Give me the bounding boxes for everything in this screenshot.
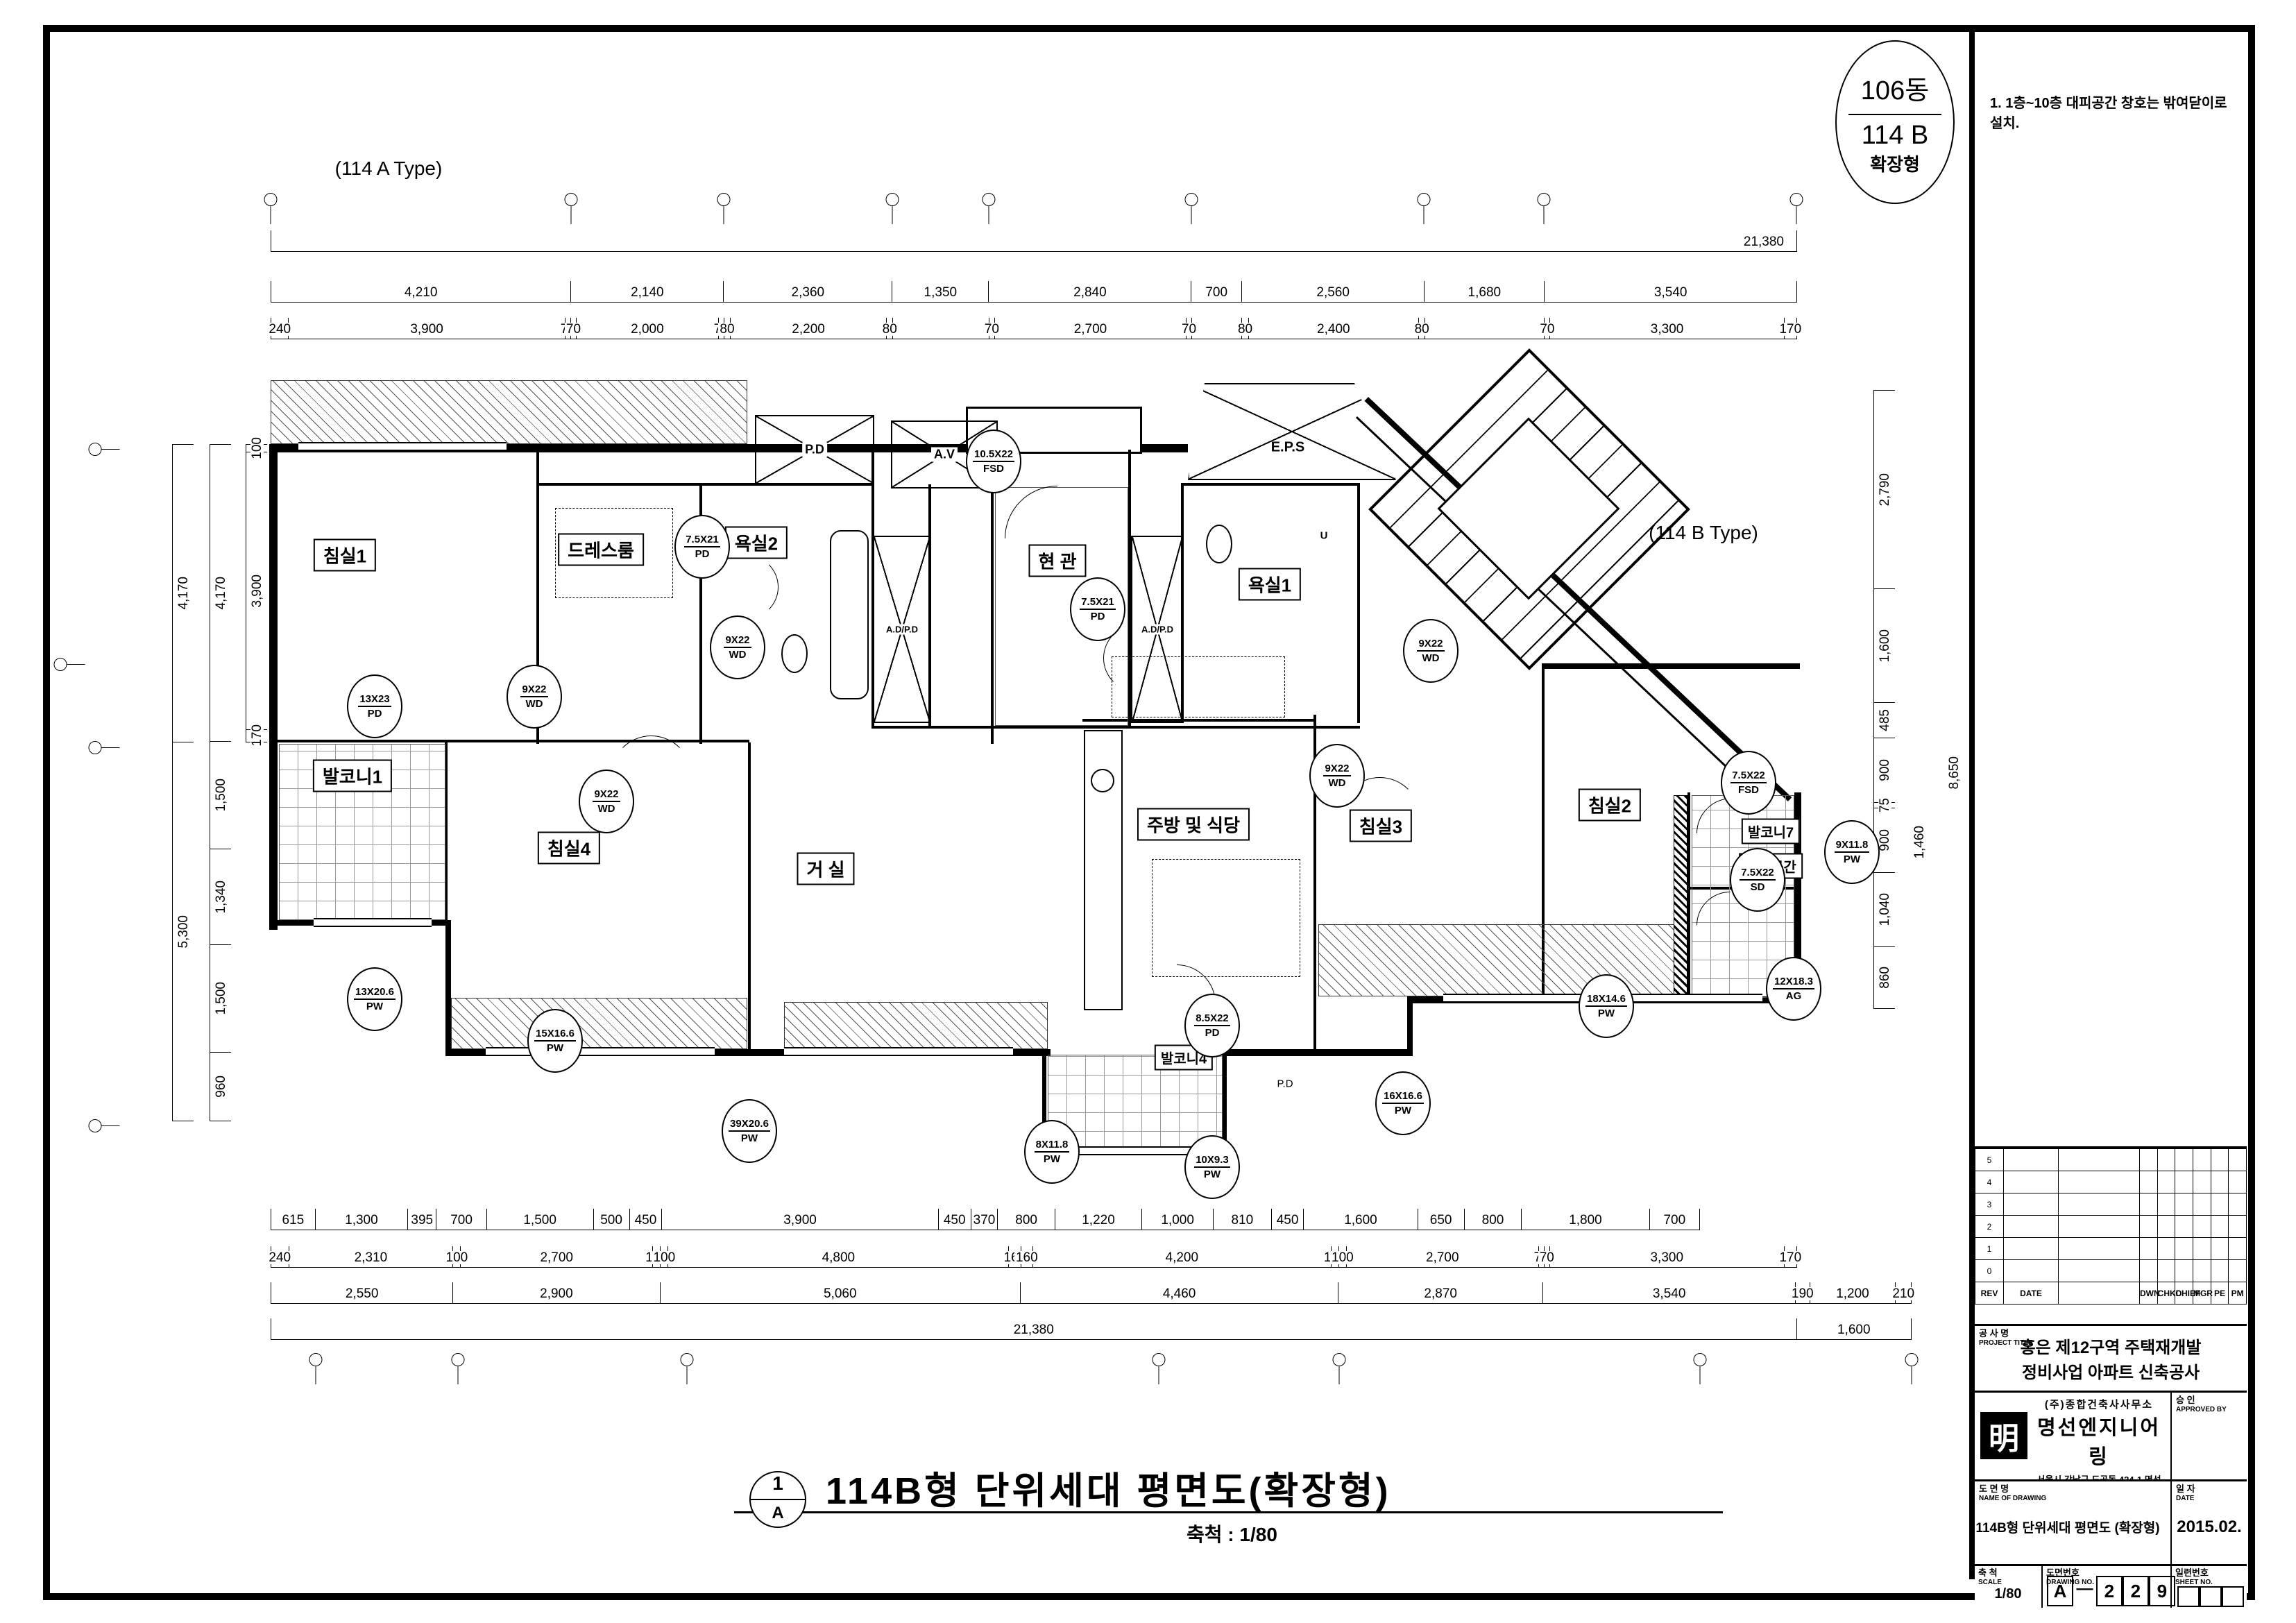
grid-bubble	[452, 1353, 465, 1384]
dim-segment: 21,380	[271, 1318, 1796, 1339]
project-label-ko: 공 사 명	[1979, 1328, 2009, 1339]
date-label-en: DATE	[2176, 1495, 2247, 1503]
dim-segment: 3,300	[1549, 1246, 1784, 1267]
wall-right-jog	[1407, 999, 1413, 1056]
dim-left-inner: 1003,900170	[246, 444, 267, 742]
date-value: 2015.02.	[2172, 1518, 2247, 1537]
dim-segment: 3,540	[1544, 281, 1797, 302]
rev-header: DATE	[2004, 1282, 2059, 1305]
opening-tag-wd: 9X22WD	[710, 615, 765, 679]
window	[784, 1047, 1013, 1056]
scale-value: 1/80	[1975, 1586, 2041, 1602]
dim-segment: 900	[1874, 738, 1895, 802]
dim-segment: 2,700	[460, 1246, 652, 1267]
opening-tag-pd: 13X23PD	[347, 674, 402, 738]
dim-segment: 800	[997, 1209, 1055, 1230]
opening-tag-pw: 9X11.8PW	[1824, 820, 1880, 884]
dim-segment: 1,500	[486, 1209, 593, 1230]
revision-table: 5 4 3 2 1 0 REV DATE DWN CHKD CHIEF MGR …	[1975, 1146, 2247, 1305]
dim-top-total: 21,380	[271, 230, 1797, 252]
date-label-ko: 일 자	[2176, 1484, 2195, 1494]
dim-segment: 2,400	[1248, 318, 1418, 339]
viewport-number: 1	[751, 1472, 805, 1500]
room-entry: 현 관	[1028, 545, 1086, 577]
dim-segment: 3,900	[288, 318, 564, 339]
approved-en: APPROVED BY	[2176, 1406, 2247, 1414]
room-living: 거 실	[797, 853, 854, 885]
grid-bubble	[1418, 193, 1431, 224]
dim-segment: 100	[246, 444, 267, 452]
dim-segment: 1,600	[1303, 1209, 1417, 1230]
rev-header: REV	[1975, 1282, 2004, 1305]
room-bedroom3: 침실3	[1350, 810, 1412, 842]
dim-segment: 700	[1191, 281, 1241, 302]
dim-segment: 80	[724, 318, 730, 339]
grid-bubble	[983, 193, 996, 224]
window	[486, 1047, 715, 1056]
dim-segment: 100	[660, 1246, 667, 1267]
dim-segment: 4,800	[667, 1246, 1008, 1267]
grid-bubble	[54, 658, 85, 671]
shaft-adpd-1: A.D/P.D	[873, 536, 931, 723]
dim-segment: 2,870	[1338, 1282, 1542, 1303]
bathtub	[830, 530, 869, 699]
dim-segment: 3,540	[1542, 1282, 1795, 1303]
dim-segment: 21,380	[271, 230, 1797, 251]
dim-segment: 450	[938, 1209, 971, 1230]
dim-segment: 700	[1649, 1209, 1700, 1230]
grid-bubble	[565, 193, 578, 224]
window	[314, 918, 432, 927]
dim-segment: 100	[452, 1246, 460, 1267]
type-a-label: (114 A Type)	[335, 158, 443, 180]
date-cell: 일 자 DATE 2015.02.	[2170, 1481, 2247, 1566]
dim-segment: 1,600	[1796, 1318, 1912, 1339]
dim-segment: 70	[989, 318, 994, 339]
grid-bubble	[264, 193, 278, 224]
grid-bubble	[886, 193, 899, 224]
rev-row: 3	[1975, 1193, 2004, 1216]
dim-segment: 70	[570, 318, 576, 339]
rev-header: CHIEF	[2175, 1282, 2193, 1305]
grid-bubble	[1790, 193, 1803, 224]
dim-segment: 190	[1795, 1282, 1809, 1303]
dim-segment: 3,300	[1549, 318, 1783, 339]
dim-left-mid: 4,1701,5001,3401,500960	[210, 444, 231, 1121]
window	[298, 442, 507, 451]
firm-line1: (주)종합건축사사무소	[2033, 1397, 2165, 1411]
dim-segment: 2,550	[271, 1282, 452, 1303]
dim-right-8650: 8,650	[1947, 756, 1962, 790]
grid-bubble	[309, 1353, 323, 1384]
dim-segment: 160	[1021, 1246, 1032, 1267]
dim-segment: 75	[1874, 802, 1895, 808]
drawing-label-en: NAME OF DRAWING	[1979, 1495, 2046, 1503]
unit-badge: 106동 114 B 확장형	[1835, 40, 1955, 204]
sheetno-label-ko: 일련번호	[2175, 1567, 2209, 1578]
drawingno-digit: 2	[2123, 1576, 2149, 1606]
opening-tag-pw: 8X11.8PW	[1024, 1120, 1080, 1184]
dim-segment: 240	[271, 318, 288, 339]
opening-tag-pw: 39X20.6PW	[722, 1099, 777, 1163]
dim-segment: 1,800	[1521, 1209, 1649, 1230]
opening-tag-sd: 7.5X22SD	[1730, 848, 1785, 912]
room-kitchen: 주방 및 식당	[1137, 808, 1250, 841]
opening-tag-ag: 12X18.3AG	[1766, 957, 1821, 1021]
window	[1624, 994, 1762, 1003]
dim-segment	[1191, 318, 1241, 339]
dim-segment: 1,350	[892, 281, 988, 302]
opening-tag-fsd: 7.5X22FSD	[1721, 751, 1776, 815]
dim-segment: 1,680	[1424, 281, 1544, 302]
wall-bottom-2	[1223, 1049, 1413, 1056]
room-bedroom4: 침실4	[538, 832, 600, 865]
partition	[1357, 483, 1360, 723]
dim-segment: 4,460	[1020, 1282, 1338, 1303]
wall-left-lower	[445, 920, 451, 1056]
scale-number-block: 축 척 SCALE 1/80 도면번호 DRAWING NO. A — 229 …	[1975, 1564, 2247, 1606]
dim-segment: 810	[1213, 1209, 1271, 1230]
dim-segment	[892, 318, 989, 339]
opening-tag-wd: 9X22WD	[579, 770, 634, 833]
shaft-av-label: A.V	[931, 448, 958, 462]
dim-segment: 500	[593, 1209, 629, 1230]
badge-unit: 114 B	[1862, 121, 1928, 151]
dim-segment: 1,000	[1141, 1209, 1213, 1230]
drawing-name-block: 도 면 명 NAME OF DRAWING 114B형 단위세대 평면도 (확장…	[1975, 1479, 2247, 1564]
rev-row: 2	[1975, 1216, 2004, 1238]
partition	[748, 742, 751, 1052]
dim-segment: 2,140	[570, 281, 723, 302]
opening-tag-pw: 16X16.6PW	[1375, 1071, 1431, 1135]
opening-tag-pd: 8.5X22PD	[1184, 994, 1240, 1057]
dim-segment: 1,500	[210, 944, 231, 1052]
drawing-name: 114B형 단위세대 평면도 (확장형)	[1975, 1518, 2161, 1536]
rev-header	[2059, 1282, 2140, 1305]
partition	[871, 726, 1360, 729]
dim-segment: 210	[1895, 1282, 1912, 1303]
opening-tag-wd: 9X22WD	[1403, 619, 1459, 683]
dim-segment: 2,840	[988, 281, 1191, 302]
opening-tag-wd: 9X22WD	[1309, 744, 1365, 808]
grid-bubble	[681, 1353, 694, 1384]
shaft-pd-label: P.D	[802, 443, 827, 457]
grid-bubble	[1333, 1353, 1346, 1384]
drawingno-digit: 2	[2096, 1576, 2123, 1606]
adjacent-unit-strip	[271, 380, 747, 444]
room-bedroom2: 침실2	[1579, 789, 1641, 822]
dim-left-outer: 4,1705,300	[172, 444, 194, 1121]
dim-segment: 3,900	[661, 1209, 937, 1230]
dim-segment: 3,900	[246, 452, 267, 729]
title-column-divider	[1969, 32, 1975, 1579]
badge-variant: 확장형	[1870, 151, 1920, 176]
viewport-circle: 1 A	[749, 1471, 806, 1528]
dim-segment: 4,170	[173, 444, 194, 742]
dim-segment: 240	[271, 1246, 289, 1267]
expansion-hatch-2	[784, 1002, 1048, 1049]
dim-segment: 2,200	[730, 318, 886, 339]
dim-segment: 860	[1874, 946, 1895, 1009]
dim-bottom-row2: 2402,3101002,7001001004,8001601604,20010…	[271, 1246, 1797, 1268]
grid-bubble	[717, 193, 731, 224]
type-b-label: (114 B Type)	[1649, 522, 1758, 544]
shaft-u-label: U	[1320, 530, 1328, 542]
dim-segment: 1,220	[1055, 1209, 1141, 1230]
grid-bubble	[89, 1119, 120, 1132]
partition	[1181, 483, 1360, 486]
dim-segment: 1,600	[1874, 588, 1895, 702]
scale-label-en: SCALE	[1978, 1579, 2041, 1587]
firm-logo: 明	[1980, 1412, 2027, 1459]
grid-bubble	[1538, 193, 1551, 224]
rev-row: 1	[1975, 1238, 2004, 1260]
sheetno-box	[2222, 1586, 2244, 1607]
dim-segment: 1,500	[210, 741, 231, 849]
room-bath1: 욕실1	[1239, 568, 1301, 601]
sheetno-box	[2200, 1586, 2222, 1607]
approved-ko: 승 인	[2176, 1395, 2195, 1405]
dim-segment: 1,340	[210, 849, 231, 944]
dim-segment: 170	[1784, 1246, 1797, 1267]
project-label: 공 사 명 PROJECT TITLE	[1979, 1329, 2033, 1347]
dim-segment: 80	[1418, 318, 1425, 339]
general-note: 1. 1층~10층 대피공간 창호는 밖여닫이로 설치.	[1990, 92, 2233, 132]
opening-tag-pw: 18X14.6PW	[1579, 974, 1634, 1038]
room-bedroom1: 침실1	[314, 539, 376, 572]
dim-segment: 2,790	[1874, 390, 1895, 588]
dim-segment: 1,300	[315, 1209, 407, 1230]
insulated-wall-hatch	[1674, 795, 1687, 999]
grid-bubble	[1185, 193, 1198, 224]
grid-bubble	[1905, 1353, 1919, 1384]
dim-segment: 70	[1186, 318, 1191, 339]
toilet	[1206, 525, 1232, 563]
opening-tag-pd: 7.5X21PD	[674, 515, 730, 579]
dim-right-chain: 2,7901,600485900759001,040860	[1873, 390, 1895, 1009]
room-dressroom: 드레스룸	[558, 534, 644, 566]
opening-tag-wd: 9X22WD	[507, 665, 562, 729]
dining-table	[1152, 859, 1300, 977]
dim-segment: 2,360	[723, 281, 892, 302]
scale-label-ko: 축 척	[1978, 1567, 1998, 1578]
rev-row: 4	[1975, 1171, 2004, 1193]
dim-segment: 80	[1241, 318, 1248, 339]
dim-segment: 170	[1784, 318, 1797, 339]
dim-segment: 2,560	[1241, 281, 1424, 302]
shaft-pd2-label: P.D	[1277, 1078, 1293, 1090]
dim-top-row2: 2403,90070702,00070802,20080702,70070802…	[271, 318, 1797, 339]
rev-header: PE	[2211, 1282, 2229, 1305]
opening-tag-pw: 13X20.6PW	[347, 967, 402, 1031]
dim-segment	[1425, 318, 1544, 339]
dim-segment: 4,210	[271, 281, 570, 302]
badge-dong: 106동	[1848, 69, 1941, 115]
dim-bottom-row3: 2,5502,9005,0604,4602,8703,5401901,20021…	[271, 1282, 1912, 1304]
dim-segment: 485	[1874, 702, 1895, 738]
drawing-label-ko: 도 면 명	[1979, 1484, 2009, 1494]
project-name-line2: 정비사업 아파트 신축공사	[1975, 1361, 2247, 1386]
opening-tag-pd: 7.5X21PD	[1070, 577, 1125, 641]
grid-bubble	[1694, 1353, 1707, 1384]
dim-segment: 1,200	[1810, 1282, 1896, 1303]
scale-note: 축척 : 1/80	[1187, 1520, 1277, 1547]
shaft-adpd1-label: A.D/P.D	[883, 624, 921, 635]
dim-segment: 700	[436, 1209, 486, 1230]
dim-segment: 395	[407, 1209, 436, 1230]
wall-left	[269, 444, 278, 930]
firm-name: 명선엔지니어링	[2033, 1411, 2165, 1470]
room-balcony1: 발코니1	[313, 760, 392, 792]
approved-cell: 승 인 APPROVED BY	[2170, 1393, 2247, 1481]
dim-right-1460: 1,460	[1912, 826, 1928, 859]
toilet	[781, 634, 808, 673]
dim-segment: 650	[1418, 1209, 1464, 1230]
dim-segment: 960	[210, 1052, 231, 1121]
dim-segment: 800	[1464, 1209, 1522, 1230]
dim-segment: 2,900	[452, 1282, 659, 1303]
project-label-en: PROJECT TITLE	[1979, 1339, 2033, 1348]
project-title-block: 공 사 명 PROJECT TITLE 홍은 제12구역 주택재개발 정비사업 …	[1975, 1324, 2247, 1391]
grid-bubble	[1153, 1353, 1166, 1384]
dim-segment: 80	[886, 318, 892, 339]
dim-segment: 2,700	[994, 318, 1186, 339]
rev-header: PM	[2229, 1282, 2247, 1305]
drawing-sheet: 106동 114 B 확장형 1. 1층~10층 대피공간 창호는 밖여닫이로 …	[0, 0, 2296, 1623]
dim-segment: 100	[1338, 1246, 1346, 1267]
expansion-hatch-1	[451, 998, 747, 1049]
sheetno-box	[2177, 1586, 2200, 1607]
drawing-number: A — 229	[2047, 1576, 2175, 1606]
grid-bubble	[89, 443, 120, 456]
dim-segment: 70	[1544, 1246, 1549, 1267]
room-balcony7: 발코니7	[1742, 819, 1800, 844]
dim-segment: 4,200	[1032, 1246, 1331, 1267]
firm-block: 明 (주)종합건축사사무소 명선엔지니어링 서울시 강남구 도곡동 424-1 …	[1975, 1391, 2247, 1479]
dim-segment: 450	[1271, 1209, 1304, 1230]
dim-segment: 5,300	[173, 742, 194, 1121]
partition	[1687, 792, 1690, 1001]
opening-tag-pw: 15X16.6PW	[527, 1009, 583, 1073]
sheetno-label-en: SHEET NO.	[2175, 1579, 2247, 1587]
opening-tag-pw: 10X9.3PW	[1184, 1135, 1240, 1199]
dim-segment: 2,000	[576, 318, 718, 339]
dim-segment: 70	[1544, 318, 1549, 339]
opening-tag-fsd: 10.5X22FSD	[966, 430, 1021, 493]
dim-segment: 615	[271, 1209, 315, 1230]
dim-segment: 370	[971, 1209, 998, 1230]
shaft-eps-label: E.P.S	[1271, 440, 1305, 456]
grid-bubble	[89, 741, 120, 754]
kitchen-sink	[1091, 769, 1114, 792]
dim-segment: 4,170	[210, 444, 231, 741]
rev-header: CHKD	[2157, 1282, 2175, 1305]
dim-segment: 2,700	[1346, 1246, 1538, 1267]
dim-top-row1: 4,2102,1402,3601,3502,8407002,5601,6803,…	[271, 281, 1797, 303]
sheet-title: 114B형 단위세대 평면도(확장형)	[826, 1460, 1391, 1515]
room-bath2: 욕실2	[725, 527, 788, 559]
rev-header: MGR	[2193, 1282, 2211, 1305]
shaft-pd: P.D	[755, 415, 874, 484]
wall-bedroom2-top	[1542, 663, 1800, 669]
dim-segment: 2,310	[289, 1246, 453, 1267]
rev-row: 0	[1975, 1260, 2004, 1282]
dim-segment: 450	[629, 1209, 662, 1230]
rev-header: DWN	[2140, 1282, 2158, 1305]
rev-row: 5	[1975, 1149, 2004, 1171]
window	[1072, 1146, 1200, 1155]
expansion-hatch-3	[1318, 924, 1686, 996]
viewport-letter: A	[772, 1500, 783, 1527]
dim-segment: 1,040	[1874, 872, 1895, 946]
dim-bottom-row4: 21,3801,600	[271, 1318, 1912, 1340]
dim-segment: 5,060	[660, 1282, 1021, 1303]
dim-segment: 170	[246, 729, 267, 742]
partition	[269, 740, 749, 742]
dim-bottom-row1: 6151,3003957001,5005004503,9004503708001…	[271, 1209, 1700, 1230]
drawingno-prefix: A	[2047, 1576, 2073, 1606]
partition	[991, 450, 994, 744]
